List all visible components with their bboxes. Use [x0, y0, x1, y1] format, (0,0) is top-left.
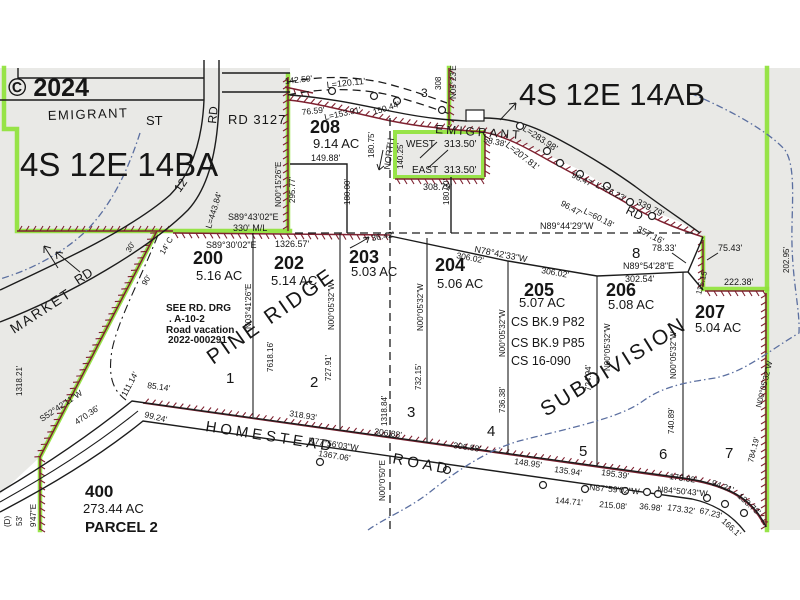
parcel-label: 5.07 AC: [519, 295, 565, 310]
dimension-label: 732.15': [414, 364, 423, 390]
parcel-label: PARCEL 2: [85, 519, 158, 536]
bridge-symbol: [466, 110, 484, 121]
road-label: ROAD: [391, 450, 452, 478]
dimension-label: 75.43': [718, 243, 743, 253]
dimension-label: 180.00': [343, 179, 352, 205]
dimension-label: 306.88': [374, 426, 403, 440]
dimension-label: 7618.16': [266, 341, 275, 372]
dimension-label: 740.89': [667, 408, 676, 434]
dimension-label: N00°05'32"W: [669, 331, 678, 379]
lot-number: 7: [725, 445, 733, 462]
dimension-label: 142.50': [284, 73, 313, 86]
dimension-label: S89°43'02"E: [228, 212, 279, 222]
dimension-label: 302.54': [625, 274, 655, 284]
road-label: RD: [205, 105, 221, 124]
lot-number: 5: [579, 443, 587, 460]
parcel-label: 200: [193, 248, 223, 268]
lot-number: 2: [310, 374, 318, 391]
dimension-label: 166.1': [720, 516, 744, 539]
dimension-label: N00°15'26"E: [274, 162, 283, 207]
dimension-label: 144.71': [555, 495, 584, 507]
dimension-label: 133.73': [736, 491, 763, 517]
dimension-label: 180.00': [442, 179, 451, 205]
dimension-label: 96.47': [559, 198, 584, 218]
dimension-label: 470.36': [73, 403, 102, 427]
dimension-label: 215.08': [599, 499, 628, 511]
plat-map-viewport: © 2024 4S 12E 14BA 4S 12E 14AB EMIGRANTS…: [0, 0, 800, 600]
parcel-label: 5.16 AC: [196, 268, 242, 283]
dimension-label: 90': [140, 273, 153, 287]
dimension-label: 313.50': [444, 139, 477, 150]
dimension-label: 36.98': [639, 501, 663, 513]
road-label: ST: [146, 113, 163, 128]
dimension-label: 94.21': [710, 477, 735, 494]
dimension-label: N87°59'02"W: [589, 482, 640, 496]
section-label-right: 4S 12E 14AB: [519, 77, 705, 112]
dimension-label: 76.59': [301, 105, 325, 117]
dimension-label: 308: [434, 76, 443, 90]
parcel-label: 207: [695, 302, 725, 322]
dimension-label: N00°05'32"W: [327, 282, 336, 330]
parcel-label: 5.08 AC: [608, 297, 654, 312]
dimension-label: 330' M/L: [233, 223, 267, 233]
dimension-label: 727.91': [324, 355, 333, 381]
dimension-label: N89°54'28"E: [623, 261, 674, 271]
parcel-label: 5.04 AC: [695, 320, 741, 335]
dimension-label: 78.33': [652, 243, 677, 253]
dimension-label: 295.77': [288, 177, 297, 203]
dimension-label: 736.38': [498, 387, 507, 413]
note-text: SEE RD. DRG: [166, 303, 231, 314]
parcel-label: 400: [85, 482, 113, 501]
dimension-label: 180.75': [367, 132, 376, 158]
road-label: RD 3127: [228, 112, 286, 127]
note-text: . A-10-2: [169, 314, 205, 325]
note-text: CS BK.9 P85: [511, 336, 585, 350]
dimension-label: N03°41'26"E: [244, 284, 253, 329]
dimension-label: 784.19': [746, 436, 761, 464]
dimension-label: N00°05'32"W: [603, 323, 612, 371]
dimension-label: N00°0'50"E: [378, 460, 387, 501]
lot-number: 3: [407, 404, 415, 421]
dimension-label: 150.44': [372, 99, 402, 117]
dimension-label: 67.23': [699, 505, 724, 520]
dimension-label: 111.14': [119, 370, 140, 398]
parcel-label: 202: [274, 253, 304, 273]
dimension-label: 222.38': [724, 277, 754, 287]
section-label-left: 4S 12E 14BA: [20, 146, 218, 183]
dimension-label: 53': [15, 515, 24, 526]
lot208-cut-line: [290, 164, 347, 233]
lot-number: 4: [487, 423, 495, 440]
dimension-label: 3: [421, 86, 428, 100]
note-text: 2022-000291: [168, 335, 227, 346]
plat-map-canvas: © 2024 4S 12E 14BA 4S 12E 14AB EMIGRANTS…: [0, 0, 800, 600]
dimension-label: (D): [3, 516, 12, 527]
watermark-text: © 2024: [8, 74, 89, 102]
dimension-label: 1318.21': [15, 365, 24, 396]
dimension-label: N84°50'43"W: [657, 484, 708, 498]
parcel-label: 273.44 AC: [83, 501, 144, 516]
dimension-label: EAST: [412, 165, 438, 176]
lot-number: 8: [632, 245, 640, 262]
lot-number: 1: [226, 370, 234, 387]
parcel-label: 5.06 AC: [437, 276, 483, 291]
dimension-label: N05°23'E: [449, 65, 458, 99]
parcel-label: 9.14 AC: [313, 136, 359, 151]
dimension-label: 313.50': [444, 165, 477, 176]
dimension-label: S89°30'02"E: [206, 240, 257, 250]
dimension-label: 306.02': [541, 265, 570, 280]
dimension-label: 724.94': [584, 365, 593, 391]
dimension-label: 85.14': [147, 380, 171, 393]
dimension-label: WEST: [406, 139, 435, 150]
dimension-label: 149.88': [311, 153, 341, 163]
dimension-label: 173.32': [667, 502, 696, 516]
lot-number: 6: [659, 446, 667, 463]
dimension-label: N00°05'32"W: [416, 283, 425, 331]
dimension-label: 1326.57': [275, 239, 310, 249]
dimension-label: N00°05'32"W: [498, 309, 507, 357]
dimension-label: 173.32': [669, 471, 698, 485]
dimension-label: 9'47"E: [29, 504, 38, 527]
dimension-label: 1318.84': [380, 395, 389, 426]
note-text: CS BK.9 P82: [511, 315, 585, 329]
parcel-label: 5.03 AC: [351, 264, 397, 279]
dimension-label: 140.25': [396, 143, 405, 169]
dimension-label: 195.39': [601, 467, 630, 481]
road-label: EMIGRANT: [48, 105, 129, 123]
dimension-label: 135.94': [554, 464, 583, 478]
dimension-label: 36.42': [371, 229, 396, 243]
dimension-label: 14' C: [158, 235, 175, 256]
dimension-label: N89°44'29"W: [540, 221, 594, 231]
dimension-label: 202.95': [782, 247, 791, 273]
dimension-label: 306.88': [453, 440, 482, 454]
note-text: CS 16-090: [511, 354, 571, 368]
